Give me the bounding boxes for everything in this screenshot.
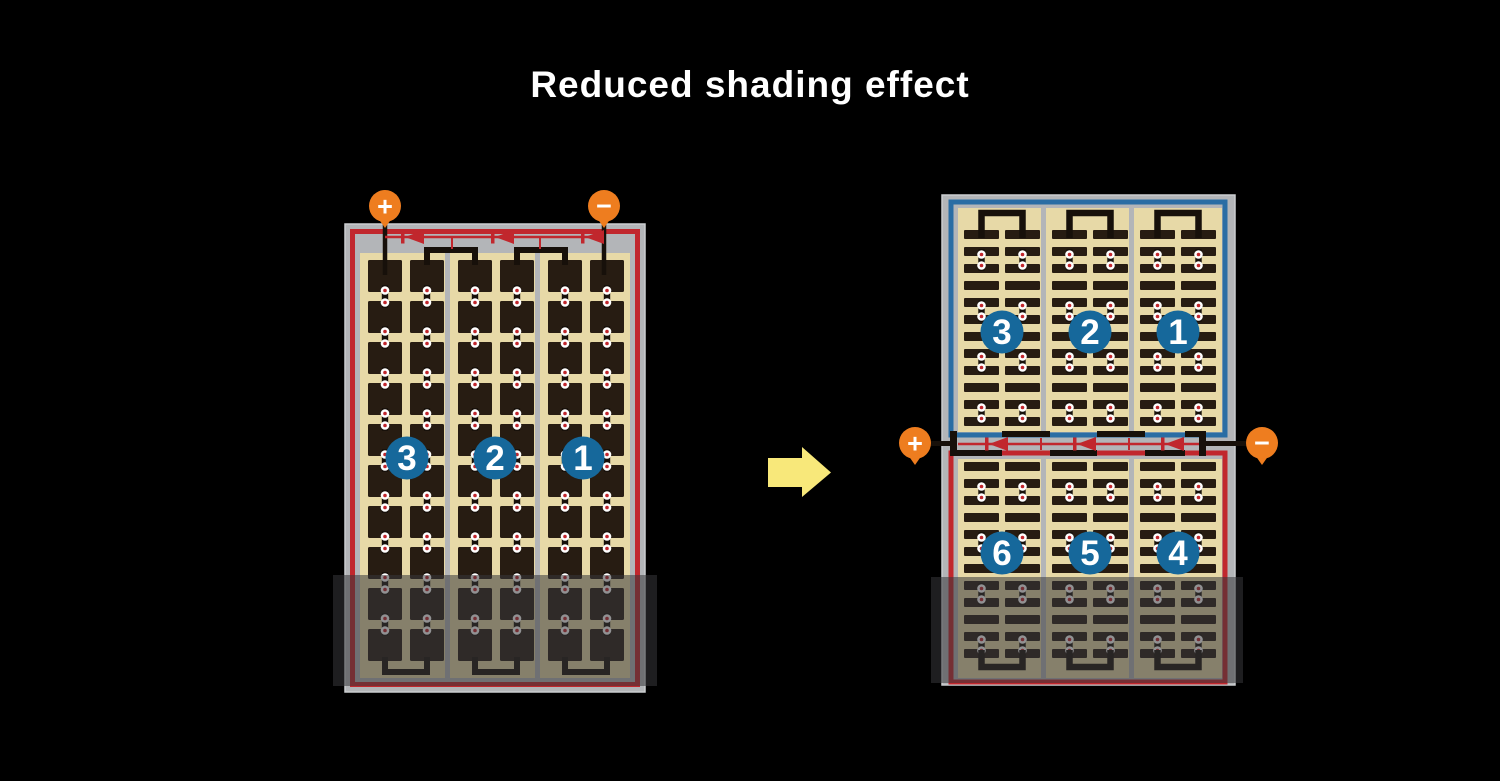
cell-group-badge-4: 4	[1157, 532, 1200, 575]
cell-connector	[1194, 402, 1203, 424]
half-cut-cell	[1093, 383, 1128, 392]
cell-connector	[561, 408, 570, 431]
half-cut-cell	[1093, 513, 1128, 522]
half-cut-cell	[964, 462, 999, 471]
cell-connector	[561, 490, 570, 513]
transform-arrow-icon	[768, 447, 831, 497]
cell-connector	[1153, 249, 1162, 271]
minus-lead-wire	[1206, 441, 1247, 446]
cell-connector	[471, 285, 480, 308]
svg-text:−: −	[596, 191, 612, 221]
cell-connector	[423, 326, 432, 349]
half-cut-cell	[1052, 513, 1087, 522]
svg-text:5: 5	[1080, 534, 1099, 573]
cell-connector	[1018, 351, 1027, 373]
right-panel: 3 2 1 6 5 4	[899, 195, 1278, 685]
svg-text:2: 2	[1080, 313, 1099, 352]
cell-connector	[561, 367, 570, 390]
cell-connector	[1106, 402, 1115, 424]
cell-connector	[423, 490, 432, 513]
cell-group-badge-1: 1	[562, 437, 605, 480]
svg-text:3: 3	[992, 313, 1011, 352]
cell-connector	[381, 326, 390, 349]
svg-text:+: +	[377, 192, 393, 222]
cell-connector	[603, 408, 612, 431]
bus-cap	[950, 431, 957, 456]
shade-overlay	[931, 577, 1243, 683]
cell-connector	[977, 300, 986, 322]
cell-connector	[603, 367, 612, 390]
cell-group-badge-2: 2	[474, 437, 517, 480]
cell-group-badge-2: 2	[1069, 311, 1112, 354]
cell-connector	[561, 326, 570, 349]
svg-text:+: +	[907, 429, 923, 459]
cell-connector	[381, 408, 390, 431]
cell-group-badge-5: 5	[1069, 532, 1112, 575]
string-bar	[1050, 450, 1097, 456]
cell-connector	[561, 285, 570, 308]
svg-text:1: 1	[1168, 313, 1187, 352]
cell-connector	[1106, 351, 1115, 373]
string-bar	[1097, 431, 1145, 437]
half-cut-cell	[964, 281, 999, 290]
cell-connector	[1065, 351, 1074, 373]
cell-connector	[603, 326, 612, 349]
svg-text:6: 6	[992, 534, 1011, 573]
cell-connector	[471, 326, 480, 349]
minus-terminal: −	[1246, 427, 1278, 465]
cell-connector	[1194, 249, 1203, 271]
svg-text:1: 1	[573, 439, 592, 478]
cell-connector	[1065, 249, 1074, 271]
cell-connector	[423, 531, 432, 554]
section-divider	[1129, 208, 1134, 432]
cell-group-badge-1: 1	[1157, 311, 1200, 354]
cell-connector	[513, 408, 522, 431]
cell-connector	[423, 285, 432, 308]
half-cut-cell	[1093, 281, 1128, 290]
diagram-stage: Reduced shading effect	[0, 0, 1500, 781]
shading-diagram: 3 2 1 + −	[0, 0, 1500, 781]
cell-connector	[1106, 300, 1115, 322]
cell-connector	[381, 490, 390, 513]
svg-text:3: 3	[397, 439, 416, 478]
half-cut-cell	[964, 513, 999, 522]
half-cut-cell	[1140, 281, 1175, 290]
cell-connector	[1106, 481, 1115, 503]
shade-overlay	[333, 575, 657, 686]
half-cut-cell	[1005, 383, 1040, 392]
cell-connector	[1153, 351, 1162, 373]
half-cut-cell	[1181, 281, 1216, 290]
cell-connector	[1153, 300, 1162, 322]
half-cut-cell	[1181, 383, 1216, 392]
cell-connector	[423, 367, 432, 390]
cell-connector	[1106, 249, 1115, 271]
cell-connector	[471, 408, 480, 431]
string-bar	[1145, 450, 1185, 456]
cell-connector	[603, 490, 612, 513]
cell-connector	[1153, 481, 1162, 503]
cell-connector	[977, 249, 986, 271]
cell-connector	[1018, 300, 1027, 322]
cell-connector	[1194, 481, 1203, 503]
svg-text:2: 2	[485, 439, 504, 478]
plus-terminal: +	[899, 427, 931, 465]
svg-text:4: 4	[1168, 534, 1188, 573]
cell-connector	[977, 402, 986, 424]
cell-connector	[1153, 402, 1162, 424]
cell-connector	[513, 367, 522, 390]
section-divider	[1041, 208, 1046, 432]
half-cut-cell	[1181, 462, 1216, 471]
half-cut-cell	[1005, 281, 1040, 290]
cell-connector	[1018, 249, 1027, 271]
cell-connector	[513, 285, 522, 308]
half-cut-cell	[1052, 462, 1087, 471]
cell-connector	[1065, 481, 1074, 503]
string-bar	[955, 450, 1002, 456]
cell-connector	[513, 531, 522, 554]
cell-connector	[381, 531, 390, 554]
cell-connector	[381, 285, 390, 308]
cell-connector	[1018, 481, 1027, 503]
cell-connector	[603, 285, 612, 308]
half-cut-cell	[1140, 383, 1175, 392]
cell-connector	[603, 531, 612, 554]
half-cut-cell	[1140, 462, 1175, 471]
cell-connector	[1065, 402, 1074, 424]
plus-lead-wire	[929, 441, 951, 446]
cell-connector	[513, 490, 522, 513]
half-cut-cell	[1052, 281, 1087, 290]
cell-connector	[1018, 402, 1027, 424]
cell-group-badge-3: 3	[981, 311, 1024, 354]
cell-connector	[1194, 351, 1203, 373]
half-cut-cell	[1005, 513, 1040, 522]
minus-terminal: −	[588, 190, 620, 228]
svg-text:−: −	[1254, 428, 1270, 458]
cell-connector	[513, 326, 522, 349]
half-cut-cell	[1093, 462, 1128, 471]
cell-connector	[977, 351, 986, 373]
half-cut-cell	[1140, 513, 1175, 522]
cell-group-badge-6: 6	[981, 532, 1024, 575]
half-cut-cell	[1005, 462, 1040, 471]
cell-connector	[561, 531, 570, 554]
cell-connector	[977, 481, 986, 503]
bus-cap	[1199, 431, 1206, 456]
plus-terminal: +	[369, 190, 401, 228]
cell-connector	[1194, 300, 1203, 322]
cell-connector	[471, 367, 480, 390]
half-cut-cell	[1052, 383, 1087, 392]
cell-connector	[423, 408, 432, 431]
cell-connector	[471, 531, 480, 554]
half-cut-cell	[1181, 513, 1216, 522]
cell-connector	[1065, 300, 1074, 322]
string-bar	[1002, 431, 1050, 437]
half-cut-cell	[964, 383, 999, 392]
left-panel: 3 2 1 + −	[333, 190, 657, 692]
cell-group-badge-3: 3	[386, 437, 429, 480]
cell-connector	[381, 367, 390, 390]
cell-connector	[471, 490, 480, 513]
